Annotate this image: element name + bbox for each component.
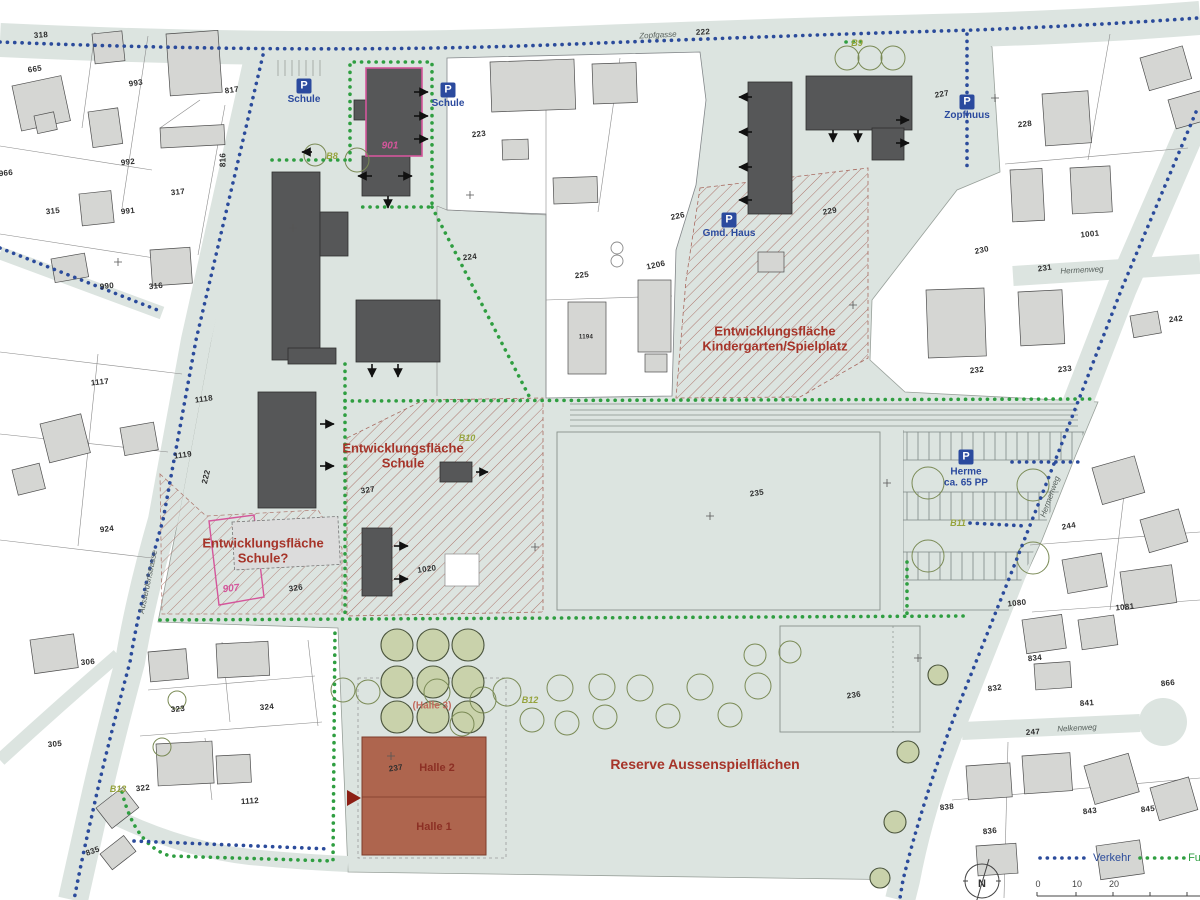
parcel-label: 832 xyxy=(987,684,1002,695)
parcel-label: 327 xyxy=(360,486,375,497)
building-907-label: 907 xyxy=(222,583,240,596)
parcel-label: 222 xyxy=(696,28,711,38)
north-label: N xyxy=(978,878,986,890)
parcel-label: 226 xyxy=(670,211,686,223)
building-901-label: 901 xyxy=(382,140,399,151)
site-plan: Verkehr Fuss N 3186659938179928169913153… xyxy=(0,0,1200,900)
parcel-label: 1112 xyxy=(241,797,260,807)
parcel-label: 247 xyxy=(1026,728,1041,738)
parcel-label: 326 xyxy=(288,584,303,595)
zone-schule-frage: EntwicklungsflächeSchule? xyxy=(202,536,323,565)
blabel-label: B8 xyxy=(326,151,338,161)
parcel-label: 845 xyxy=(1140,805,1155,815)
zone-reserve: Reserve Aussenspielflächen xyxy=(610,757,799,773)
parcel-label: 1081 xyxy=(1115,603,1135,614)
legend-verkehr-label: Verkehr xyxy=(1093,852,1131,864)
parcel-label: 1118 xyxy=(194,394,213,405)
parcel-label: 225 xyxy=(574,271,589,281)
street-label: Hermenweg xyxy=(1039,475,1062,519)
scaletick-label: 20 xyxy=(1109,879,1119,889)
parcel-label: 816 xyxy=(220,153,229,167)
parcel-label: 235 xyxy=(749,489,764,500)
parcel-label: 236 xyxy=(846,691,861,702)
parcel-label: 222 xyxy=(201,469,213,485)
parcel-label: 991 xyxy=(120,207,135,217)
parcel-label: 992 xyxy=(120,158,135,168)
parcel-label: 966 xyxy=(0,169,14,179)
parking-icon: P xyxy=(722,213,737,228)
parking-icon: P xyxy=(441,83,456,98)
parcel-label: 230 xyxy=(974,245,990,257)
zone-schule: EntwicklungsflächeSchule xyxy=(342,441,463,470)
parcel-label: 323 xyxy=(171,705,186,715)
parking-label: Zopfhuus xyxy=(944,111,990,122)
parking-icon: P xyxy=(297,79,312,94)
parcel-label: 229 xyxy=(822,206,838,217)
parking-label: Hermeca. 65 PP xyxy=(944,468,988,489)
parking-icon: P xyxy=(959,450,974,465)
blabel-label: B12 xyxy=(522,695,539,705)
parcel-label: 316 xyxy=(148,282,163,292)
parcel-label: 990 xyxy=(99,282,114,292)
parcel-label: 843 xyxy=(1082,807,1097,817)
parcel-label: 237 xyxy=(388,764,403,775)
halle-1-label: Halle 1 xyxy=(416,821,451,833)
parcel-label: 228 xyxy=(1017,120,1032,130)
parcel-label: 305 xyxy=(48,740,63,750)
parcel-label: 924 xyxy=(99,525,114,535)
parking-label: Gmd. Haus xyxy=(703,229,756,240)
parcel-label: 244 xyxy=(1061,521,1077,532)
label-layer: Verkehr Fuss N 3186659938179928169913153… xyxy=(0,0,1200,900)
parcel-label: 324 xyxy=(260,703,275,713)
halle-2-label: Halle 2 xyxy=(419,762,454,774)
parking-label: Schule xyxy=(288,95,321,106)
parcel-label: 1206 xyxy=(646,260,666,273)
parcel-label: 993 xyxy=(128,79,143,90)
street-label: Zopfgasse xyxy=(639,31,677,42)
halle-3-label: (Halle 3) xyxy=(413,700,452,711)
parcel-label: 834 xyxy=(1027,654,1042,664)
street-label: Nelkenweg xyxy=(1057,723,1097,734)
parcel-label: 317 xyxy=(170,188,185,198)
parcel-label: 838 xyxy=(939,803,954,813)
parcel-label: 1080 xyxy=(1007,599,1027,610)
parcel-label: 242 xyxy=(1168,315,1183,325)
parcel-label: 836 xyxy=(982,827,997,837)
parcel-label: 318 xyxy=(34,31,49,41)
parcel-label: 835 xyxy=(85,845,101,858)
parcel-label: 232 xyxy=(969,366,984,376)
parcel-label: 1119 xyxy=(173,450,192,461)
parcel-label: 1117 xyxy=(91,378,110,389)
parcel-label: 223 xyxy=(471,130,486,140)
scaletick-label: 10 xyxy=(1072,879,1082,889)
parcel-label: 227 xyxy=(934,89,950,100)
blabel-label: B11 xyxy=(950,518,966,528)
parcel-label: 224 xyxy=(462,253,477,263)
parcel-label: 306 xyxy=(81,658,96,668)
parcel-label: 322 xyxy=(135,784,150,794)
street-label: Hermenweg xyxy=(1060,265,1104,276)
blabel-label: B13 xyxy=(110,784,127,794)
zone-kindergarten: EntwicklungsflächeKindergarten/Spielplat… xyxy=(702,324,847,353)
parcel-label: 866 xyxy=(1160,679,1175,689)
parcel-label: 233 xyxy=(1057,365,1072,375)
street-label: Ausserdorfstrasse xyxy=(138,550,160,615)
parcel-label: 231 xyxy=(1037,264,1052,275)
parcel-label: 315 xyxy=(45,207,60,217)
parcel-label: 1001 xyxy=(1080,230,1100,241)
scaletick-label: 0 xyxy=(1035,879,1040,889)
blabel-label: B9 xyxy=(851,38,863,48)
parcel-label: 1194 xyxy=(579,335,593,342)
legend-fuss-label: Fuss xyxy=(1188,852,1200,864)
parcel-label: 817 xyxy=(224,86,239,97)
parking-icon: P xyxy=(960,95,975,110)
parcel-label: 1020 xyxy=(417,564,437,576)
parking-label: Schule xyxy=(432,99,465,110)
parcel-label: 841 xyxy=(1080,699,1095,709)
parcel-label: 665 xyxy=(27,65,42,76)
